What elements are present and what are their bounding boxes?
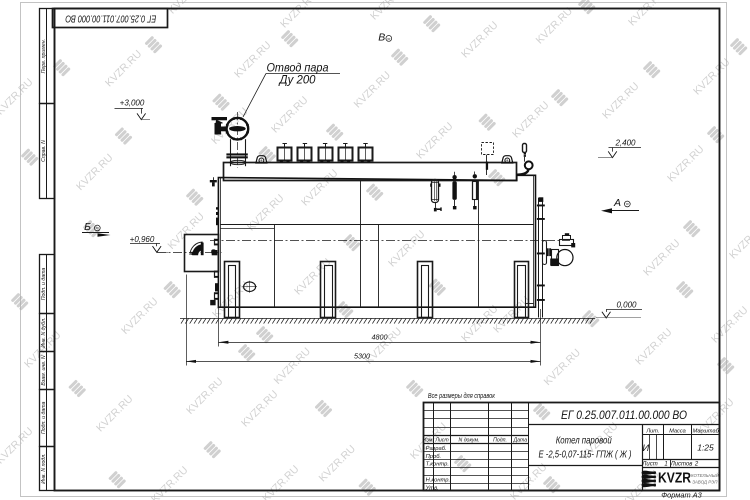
svg-text:Изм.: Изм. bbox=[423, 438, 434, 444]
svg-text:Проб.: Проб. bbox=[426, 454, 442, 460]
svg-text:И: И bbox=[642, 443, 649, 454]
svg-text:Инв. N дубл.: Инв. N дубл. bbox=[41, 318, 47, 348]
svg-text:Лист: Лист bbox=[434, 438, 449, 444]
svg-text:Формат А3: Формат А3 bbox=[661, 491, 702, 500]
svg-text:1: 1 bbox=[664, 461, 667, 467]
svg-text:Е -2,5-0,07-115- ГПЖ ( Ж ): Е -2,5-0,07-115- ГПЖ ( Ж ) bbox=[539, 450, 632, 461]
svg-text:Взам. инв. N: Взам. инв. N bbox=[41, 355, 47, 385]
svg-text:KVZR: KVZR bbox=[658, 470, 691, 487]
svg-text:2,400: 2,400 bbox=[614, 139, 636, 148]
svg-text:Дата: Дата bbox=[512, 438, 527, 444]
svg-text:Лист: Лист bbox=[641, 461, 657, 467]
svg-text:Б: Б bbox=[84, 221, 91, 233]
svg-text:ЕГ 0.25.007.011.00.000 ВО: ЕГ 0.25.007.011.00.000 ВО bbox=[561, 408, 687, 422]
svg-text:+0,960: +0,960 bbox=[130, 235, 155, 244]
svg-text:Листов: Листов bbox=[670, 461, 693, 467]
svg-text:ЕГ 0.25.007.011.00.000 ВО: ЕГ 0.25.007.011.00.000 ВО bbox=[65, 13, 156, 24]
svg-text:Ду 200: Ду 200 bbox=[278, 74, 317, 87]
svg-text:0,000: 0,000 bbox=[616, 300, 637, 309]
svg-text:N докум.: N докум. bbox=[459, 438, 480, 444]
svg-text:Подп. и дата: Подп. и дата bbox=[41, 401, 47, 434]
svg-text:А: А bbox=[613, 197, 621, 209]
svg-text:Подп.: Подп. bbox=[493, 438, 507, 444]
svg-text:Масса: Масса bbox=[669, 428, 686, 434]
svg-text:Справ. N: Справ. N bbox=[41, 140, 47, 162]
svg-text:+3,000: +3,000 bbox=[120, 99, 145, 108]
svg-text:Перв. примен.: Перв. примен. bbox=[41, 39, 47, 73]
svg-text:2: 2 bbox=[694, 461, 699, 467]
svg-text:Котел паровой: Котел паровой bbox=[556, 436, 612, 447]
svg-text:4800: 4800 bbox=[372, 332, 388, 341]
svg-text:Т.контр.: Т.контр. bbox=[426, 462, 449, 468]
svg-text:В: В bbox=[378, 32, 385, 44]
svg-text:Утв.: Утв. bbox=[425, 485, 439, 491]
svg-text:1:25: 1:25 bbox=[697, 443, 714, 453]
svg-text:Инв. N подл.: Инв. N подл. bbox=[41, 453, 47, 483]
svg-text:Лит.: Лит. bbox=[645, 428, 659, 434]
svg-text:Разраб.: Разраб. bbox=[426, 446, 447, 452]
svg-text:5300: 5300 bbox=[354, 351, 370, 360]
svg-text:Н.контр.: Н.контр. bbox=[426, 478, 451, 484]
svg-text:Масштаб: Масштаб bbox=[693, 428, 720, 434]
svg-text:КОТЕЛЬНЫЙ: КОТЕЛЬНЫЙ bbox=[691, 473, 719, 478]
svg-text:ЗАВОД РЭП: ЗАВОД РЭП bbox=[692, 480, 718, 485]
svg-text:Подп. и дата: Подп. и дата bbox=[41, 268, 47, 301]
svg-text:Все размеры для справок: Все размеры для справок bbox=[428, 392, 496, 400]
